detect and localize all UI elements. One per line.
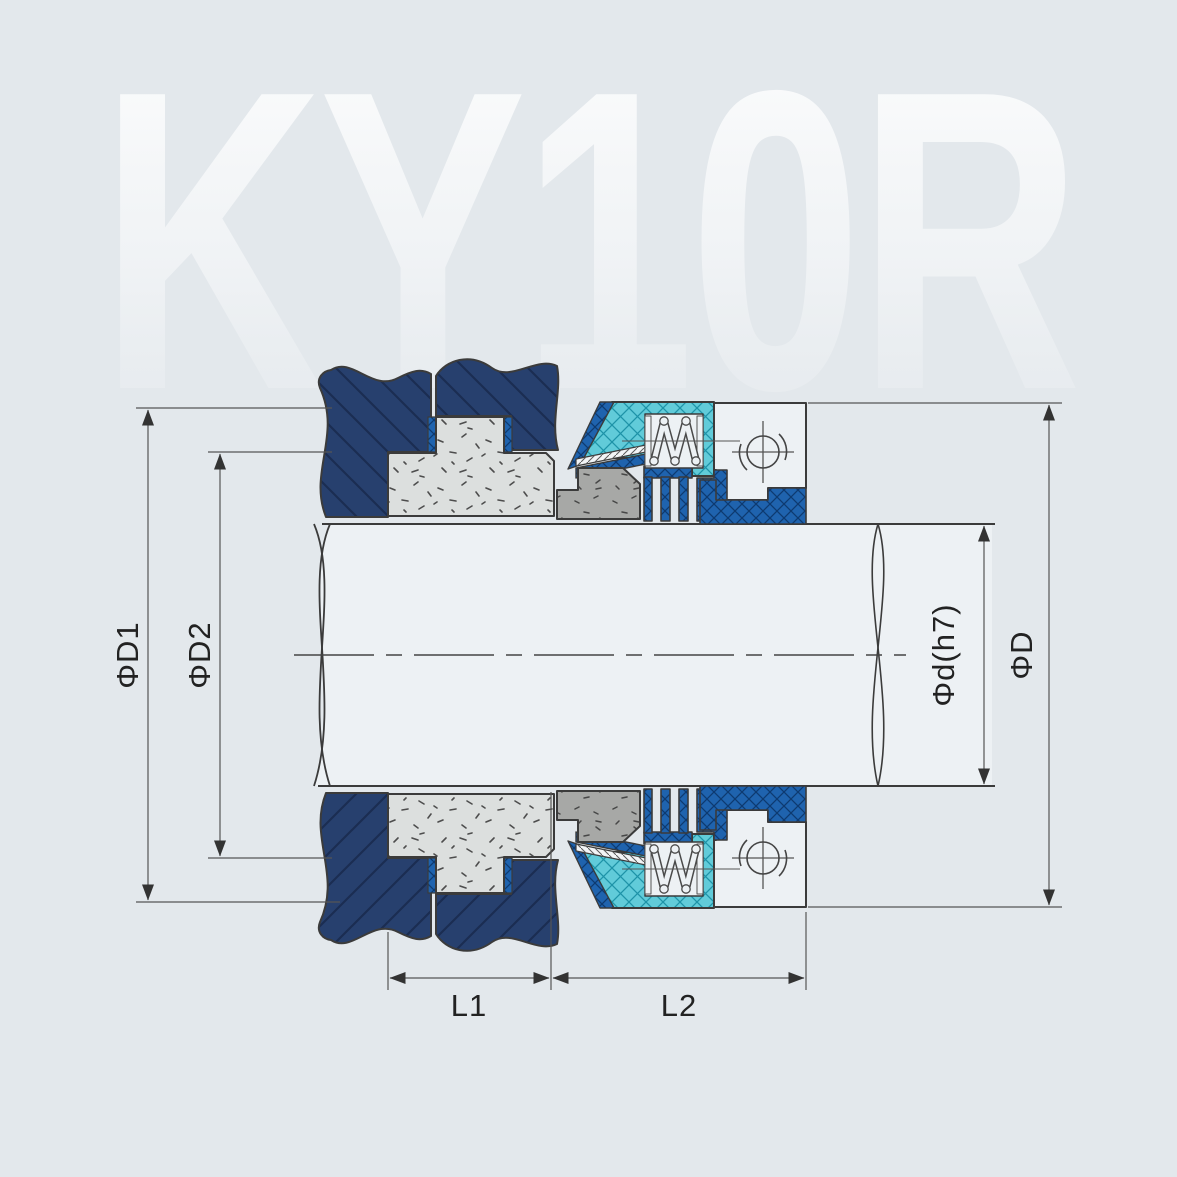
seal-drawing-svg: KY10R	[0, 0, 1177, 1177]
label-phi-D: ΦD	[1004, 630, 1039, 679]
label-L2: L2	[661, 988, 697, 1023]
seat-gasket-right	[504, 417, 512, 452]
seat-gasket-left	[428, 417, 436, 452]
shaft	[294, 524, 995, 786]
label-phi-D1: ΦD1	[110, 621, 145, 688]
label-phi-D2: ΦD2	[182, 621, 217, 688]
drawing-canvas: KY10R	[0, 0, 1177, 1177]
label-phi-d-h7: Φd(h7)	[926, 603, 961, 706]
label-L1: L1	[451, 988, 487, 1023]
